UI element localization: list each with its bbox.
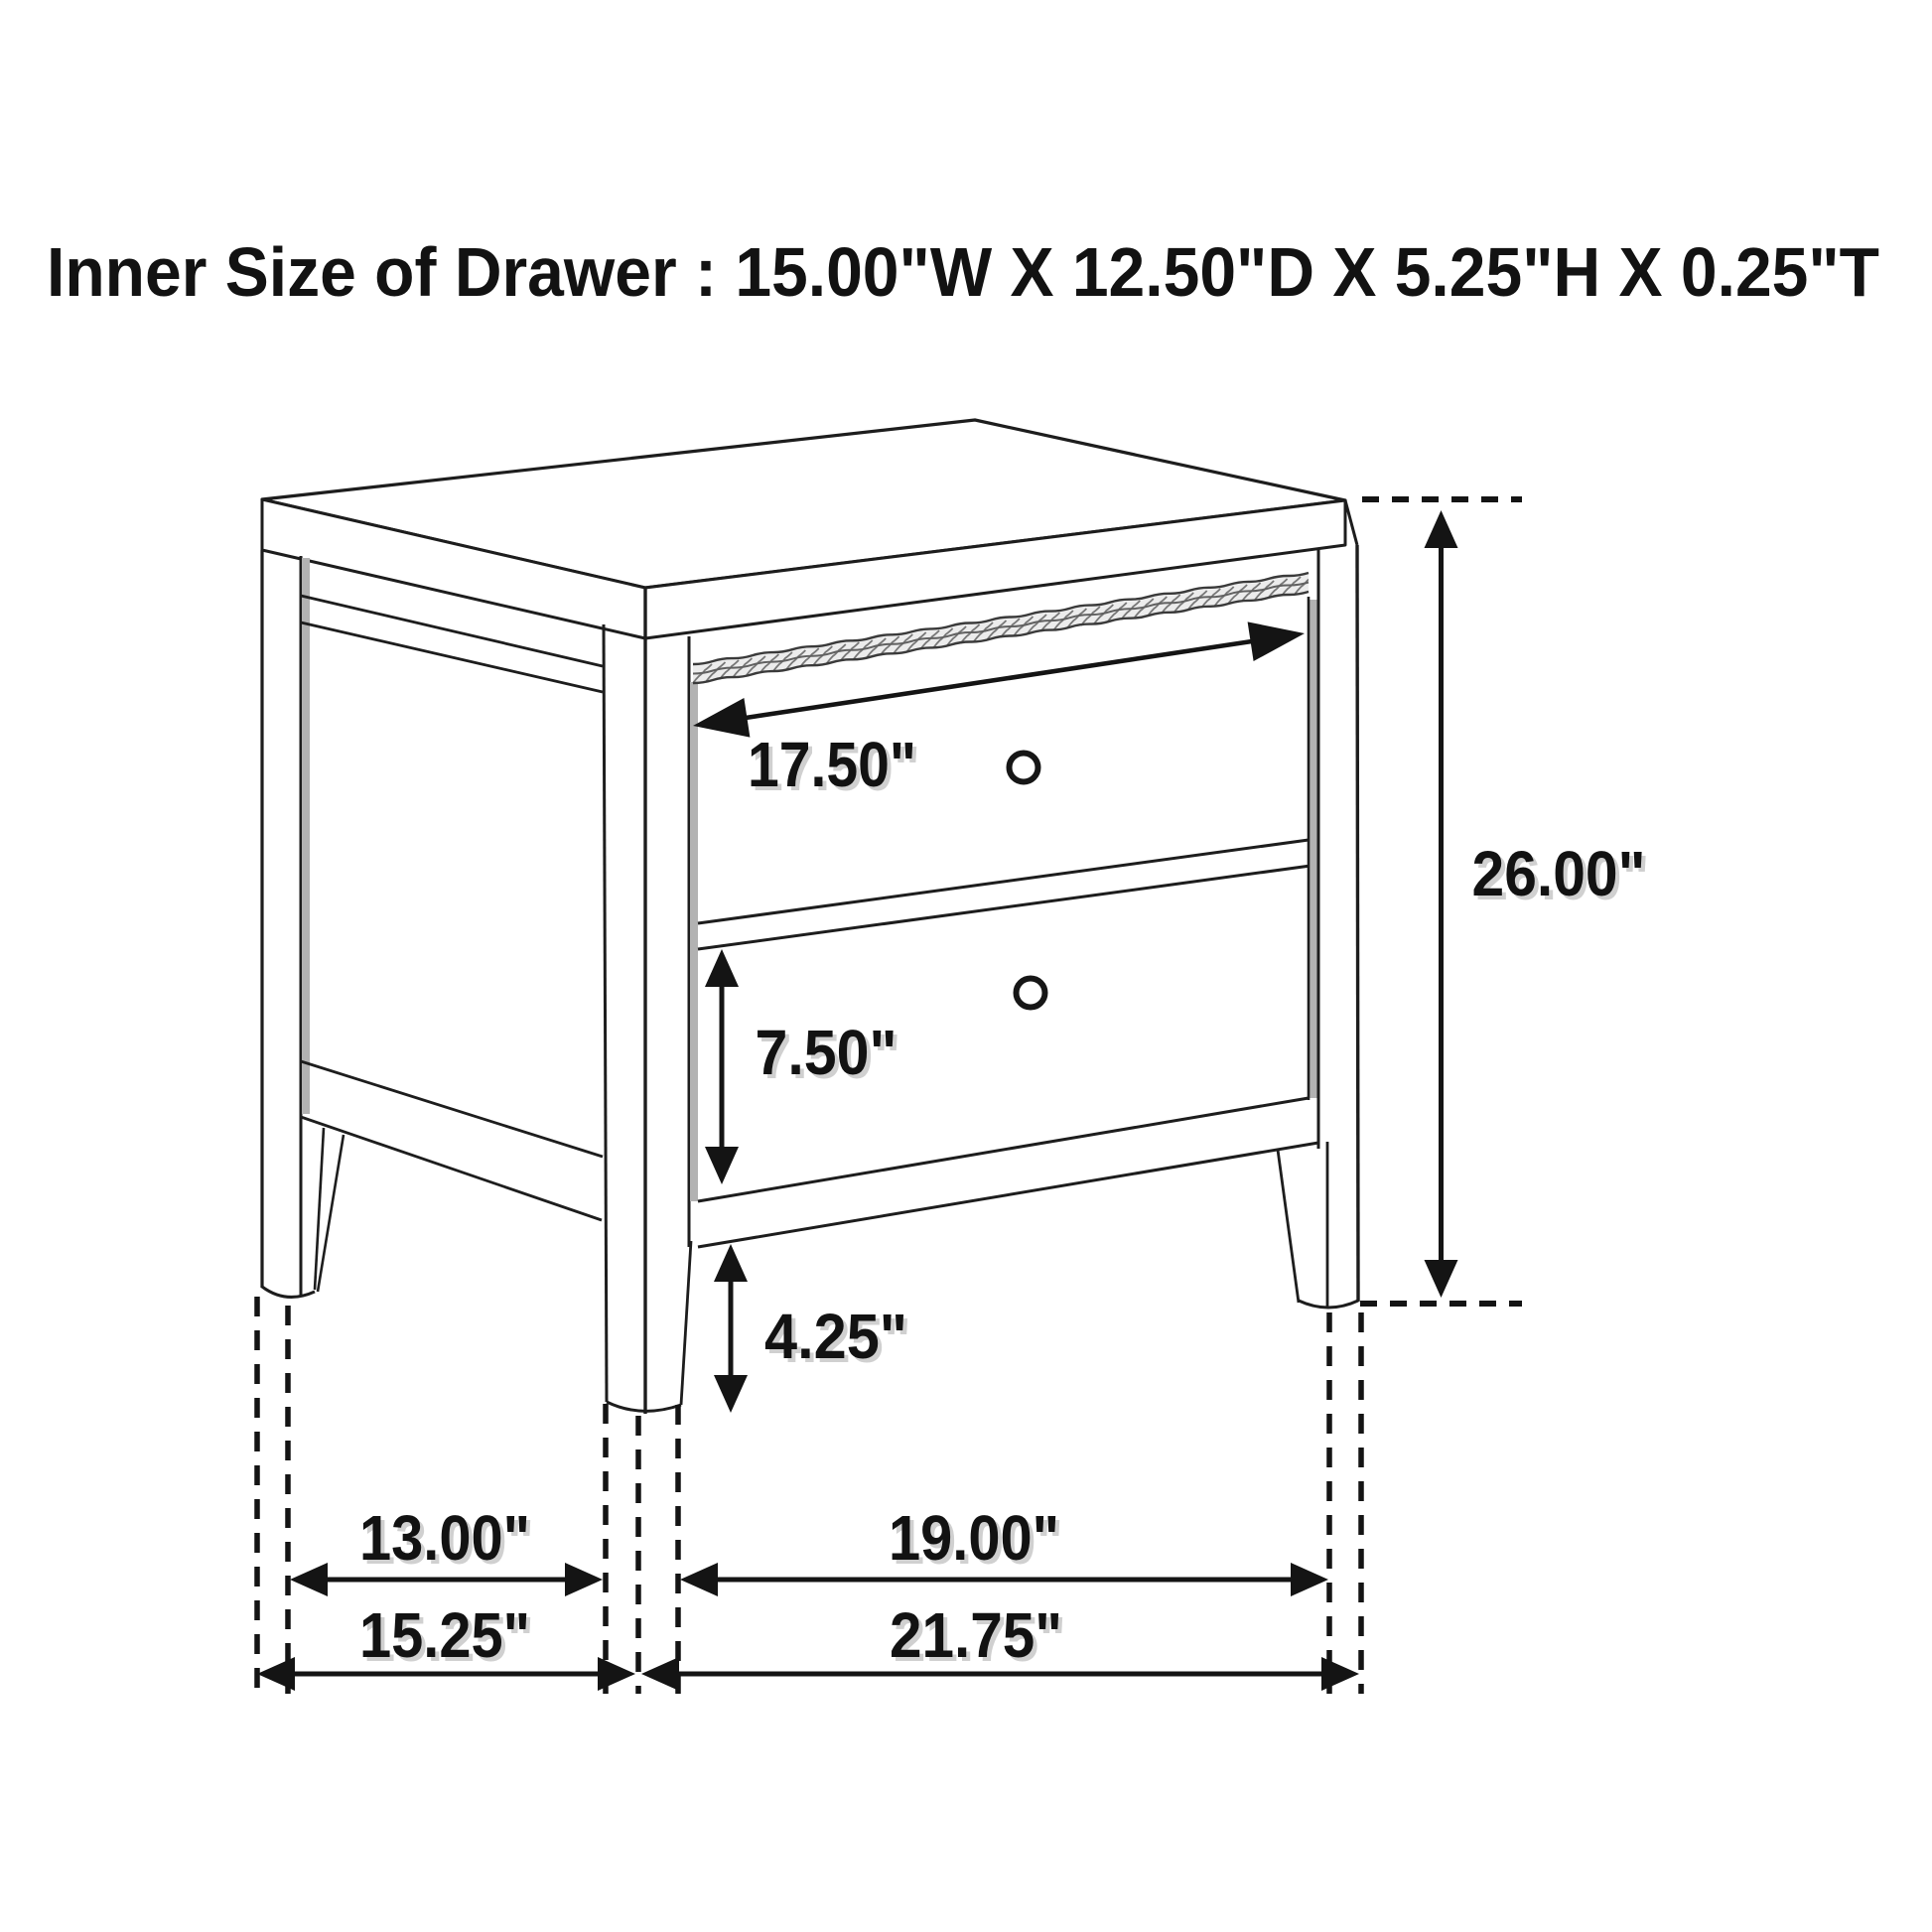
svg-text:13.00": 13.00": [359, 1502, 530, 1574]
svg-text:21.75": 21.75": [890, 1599, 1062, 1671]
svg-text:4.25": 4.25": [764, 1301, 907, 1372]
svg-text:15.25": 15.25": [359, 1599, 530, 1671]
svg-text:19.00": 19.00": [889, 1502, 1059, 1574]
svg-text:17.50": 17.50": [748, 729, 916, 800]
svg-text:26.00": 26.00": [1472, 838, 1646, 909]
svg-text:Inner Size of Drawer : 15.00"W: Inner Size of Drawer : 15.00"W X 12.50"D…: [47, 233, 1879, 311]
svg-text:7.50": 7.50": [756, 1017, 897, 1088]
